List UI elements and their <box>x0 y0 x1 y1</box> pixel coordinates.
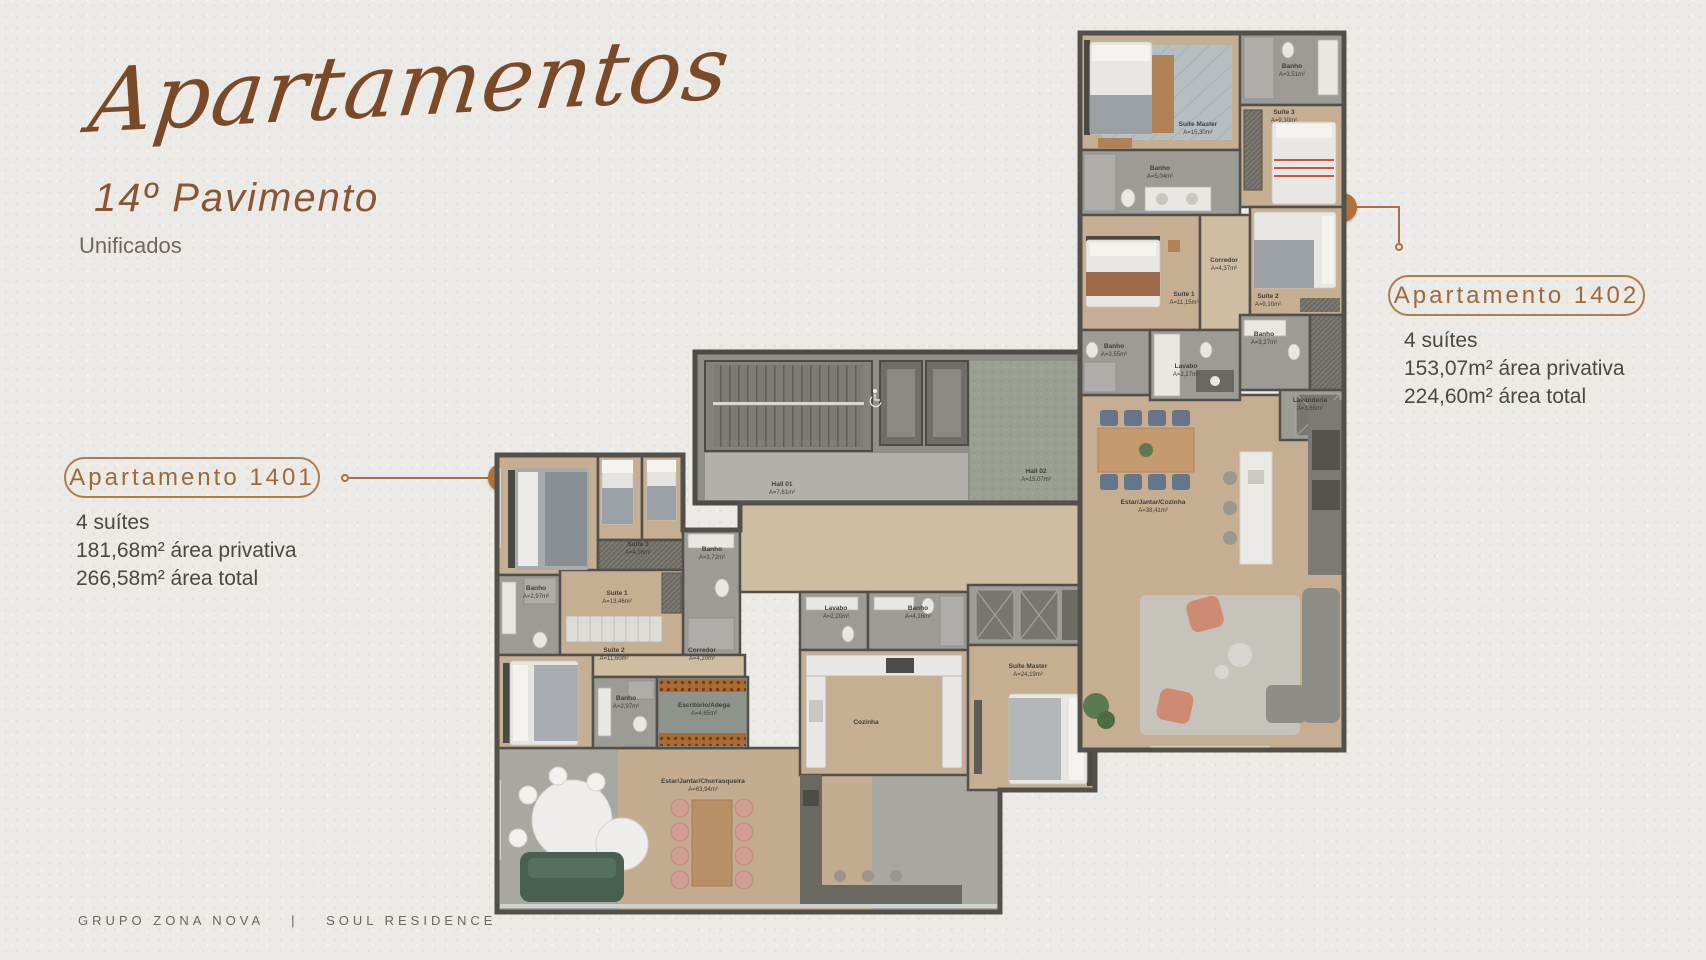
apartment-1401-suites: 4 suítes <box>76 509 297 537</box>
room-label: Suíte Master <box>1009 663 1048 670</box>
apartment-1402-total-area: 224,60m² área total <box>1404 383 1625 411</box>
footer: GRUPO ZONA NOVA | SOUL RESIDENCE <box>78 913 496 928</box>
room-label: Suíte 3 <box>627 541 649 548</box>
room-label: Banho <box>908 605 928 612</box>
room-label: Hall 01 <box>772 481 793 488</box>
room-label-area: A=2,27m² <box>1173 372 1199 378</box>
brochure-page: Apartamentos 14º Pavimento Unificados Ap… <box>0 0 1706 960</box>
room-label-area: A=24,19m² <box>1013 672 1043 678</box>
room-label-area: A=63,94m² <box>688 787 718 793</box>
room-label-area: A=2,97m² <box>613 704 639 710</box>
room-label: Corredor <box>688 647 716 654</box>
room-label: Suíte 2 <box>603 647 625 654</box>
room-label-area: A=11,60m² <box>599 656 628 662</box>
room-label: Suíte 1 <box>606 590 628 597</box>
room-label-area: A=4,65m² <box>691 711 717 717</box>
room-label-area: A=11,15m² <box>1169 300 1198 306</box>
room-label: Estar/Jantar/Churrasqueira <box>661 778 745 785</box>
connector-dot-1402 <box>1395 243 1403 251</box>
room-label: Suíte Master <box>1179 121 1218 128</box>
room-label-area: A=7,61m² <box>769 490 795 496</box>
room-label-area: A=5,04m² <box>1147 174 1173 180</box>
floor-subtitle: Unificados <box>79 233 182 259</box>
room-label-area: A=3,65m² <box>1297 406 1323 412</box>
room-label: Lavabo <box>1175 363 1198 370</box>
room-label-area: A=3,51m² <box>1279 72 1305 78</box>
room-label: Lavanderia <box>1293 397 1328 404</box>
room-label-area: A=4,20m² <box>689 656 715 662</box>
room-label-area: A=3,27m² <box>1251 340 1277 346</box>
room-label: Banho <box>1150 165 1170 172</box>
room-1401-entry <box>740 503 1095 592</box>
room-label-area: A=4,37m² <box>1211 266 1237 272</box>
room-label: Banho <box>616 695 636 702</box>
footer-separator: | <box>291 913 298 928</box>
room-label: Suíte 1 <box>1173 291 1195 298</box>
room-label: Corredor <box>1210 257 1238 264</box>
room-label-area: A=3,72m² <box>699 555 725 561</box>
room-label-area: A=38,41m² <box>1138 508 1168 514</box>
staircase <box>705 361 872 451</box>
room-label: Banho <box>526 585 546 592</box>
room-label: Suíte 2 <box>1257 293 1279 300</box>
apartment-1401-private-area: 181,68m² área privativa <box>76 537 297 565</box>
apartment-1402-suites: 4 suítes <box>1404 327 1625 355</box>
apartment-1401-card: Apartamento 1401 <box>64 457 320 498</box>
room-1402-closet <box>1310 315 1344 390</box>
apartment-1401-total-area: 266,58m² área total <box>76 565 297 593</box>
connector-dot-1401 <box>341 474 349 482</box>
connector-line-1401 <box>349 477 489 479</box>
floor-plan-1402: Suíte Master A=15,30m² Banho A=3,51m² Su… <box>1072 28 1350 755</box>
room-label: Cozinha <box>853 719 879 726</box>
room-label: Hall 02 <box>1026 468 1047 475</box>
apartment-1402-card: Apartamento 1402 <box>1388 275 1645 316</box>
room-label: Estar/Jantar/Cozinha <box>1121 499 1186 506</box>
apartment-1402-private-area: 153,07m² área privativa <box>1404 355 1625 383</box>
room-1402-corredor <box>1200 215 1250 330</box>
room-label-area: A=4,16m² <box>905 614 931 620</box>
room-label-area: A=9,10m² <box>1255 302 1281 308</box>
room-label: Banho <box>702 546 722 553</box>
connector-line-1402-v <box>1398 206 1400 243</box>
room-label-area: A=15,07m² <box>1021 477 1051 483</box>
floor-title: 14º Pavimento <box>94 176 379 221</box>
room-label: Suíte 3 <box>1273 109 1295 116</box>
room-label: Lavabo <box>825 605 848 612</box>
page-title: Apartamentos <box>84 24 616 152</box>
room-label: Banho <box>1254 331 1274 338</box>
room-label-area: A=13,46m² <box>602 599 632 605</box>
footer-brand: GRUPO ZONA NOVA <box>78 913 263 928</box>
room-label-area: A=2,97m² <box>523 594 549 600</box>
room-label: Banho <box>1104 343 1124 350</box>
room-label-area: A=9,30m² <box>1271 118 1297 124</box>
apartment-1402-info: 4 suítes 153,07m² área privativa 224,60m… <box>1404 327 1625 411</box>
room-label: Banho <box>1282 63 1302 70</box>
room-label-area: A=3,55m² <box>1101 352 1127 358</box>
footer-project: SOUL RESIDENCE <box>326 913 496 928</box>
room-label-area: A=4,36m² <box>625 550 651 556</box>
room-label-area: A=2,20m² <box>823 614 849 620</box>
floor-plan-1401: Suíte 3 A=4,36m² Banho A=3,72m² Banho A=… <box>490 340 1110 920</box>
apartment-1401-info: 4 suítes 181,68m² área privativa 266,58m… <box>76 509 297 593</box>
room-label: Escritório/Adega <box>678 702 730 709</box>
connector-line-1402-h <box>1356 206 1400 208</box>
room-label-area: A=15,30m² <box>1183 130 1213 136</box>
